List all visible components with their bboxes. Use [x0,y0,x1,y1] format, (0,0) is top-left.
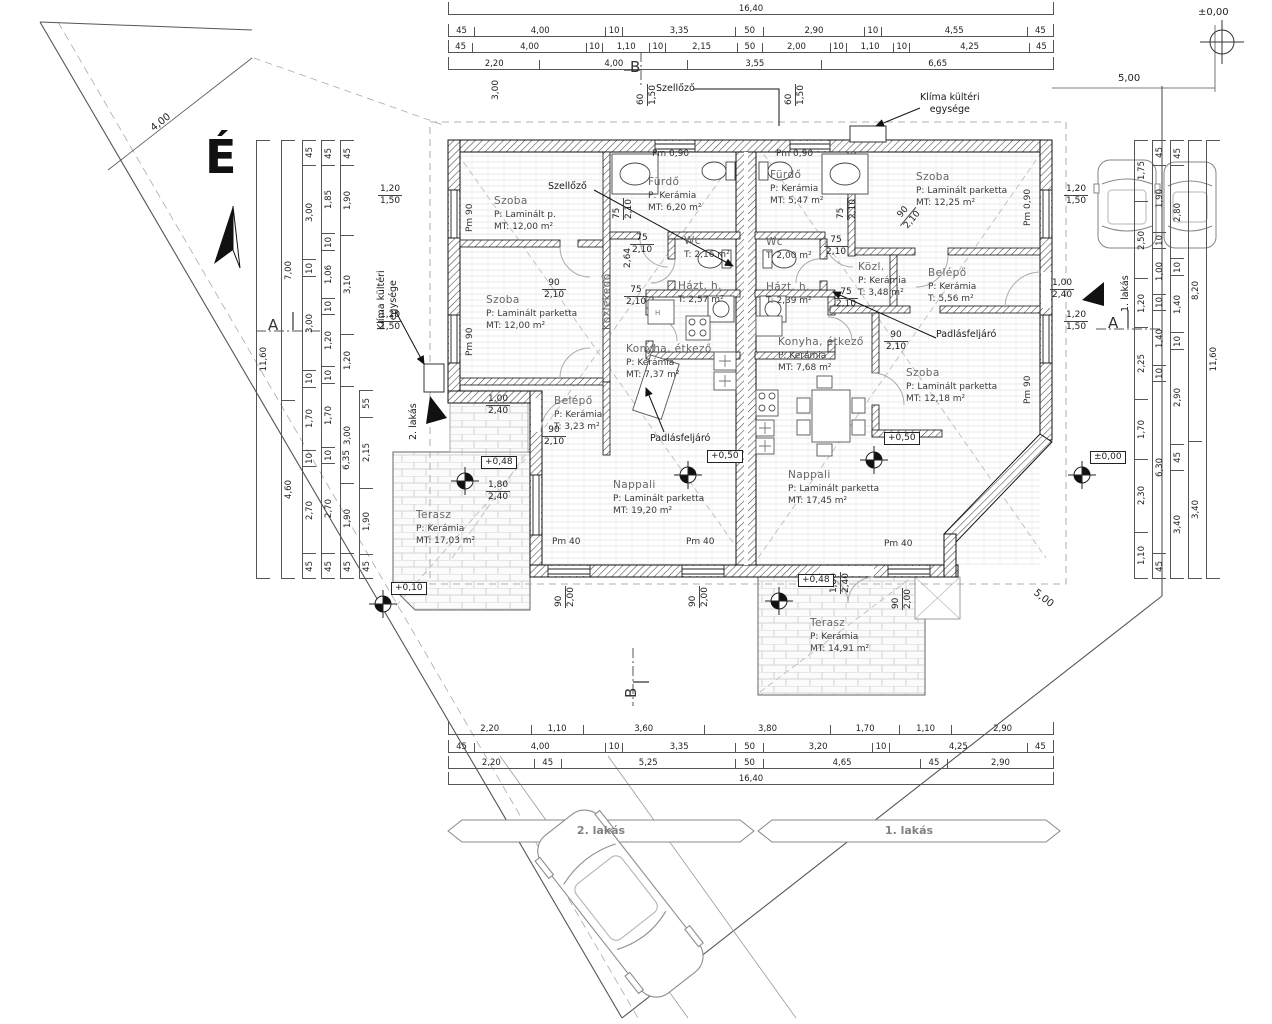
section-a-left: A [268,316,278,334]
room-apt1-hazt: Házt. h. T: 2,39 m² [766,280,812,307]
parapet-label: Pm 90 [466,327,475,356]
room-apt2-furdo: Fürdő P: Kerámia MT: 6,20 m² [648,175,701,215]
room-apt1-wc: Wc T: 2,00 m² [766,235,812,262]
dim-chain-left-6: 552,151,9045 [359,390,373,579]
svg-text:H: H [655,309,660,317]
elevation-ground-right: ±0,00 [1090,451,1126,464]
dim-chain-top-2: 454,00103,35502,90104,5545 [448,24,1054,37]
north-label: É [205,130,236,184]
north-arrow [214,206,240,268]
elevation-terasz-right: +0,48 [798,574,834,587]
parapet-label: Pm 40 [686,538,715,547]
parapet-label: Pm 90 [1024,375,1033,404]
opening-dim: 902,00 [688,586,711,608]
room-apt1-nappali: Nappali P: Laminált parketta MT: 17,45 m… [788,468,879,508]
padlas-label-left: Padlásfeljáró [650,433,710,445]
opening-dim: 601,50 [784,84,807,106]
room-apt2-nappali: Nappali P: Laminált parketta MT: 19,20 m… [613,478,704,518]
dim-chain-right-4: 8,203,40 [1188,140,1202,579]
opening-dim: 752,10 [836,198,859,220]
parapet-label: Pm 40 [884,540,913,549]
ac-unit-right [850,126,886,142]
dim-chain-right-3: 452,80101,40102,90453,40 [1170,140,1184,579]
room-apt1-szoba-top: Szoba P: Laminált parketta MT: 12,25 m² [916,170,1007,210]
elevation-terasz-left: +0,48 [481,456,517,469]
opening-dim: 752,10 [834,287,858,310]
room-apt2-kozlekedo: Közlekedő [600,273,615,330]
dim-chain-left-3: 453,00103,00101,70102,7045 [302,140,316,579]
opening-dim: 902,00 [554,586,577,608]
szellozo-label-top: Szellőző [656,83,695,95]
dim-chain-right-1: 1,752,501,202,251,702,301,10 [1134,140,1148,579]
entrance-label-apt2: 2. lakás [408,403,420,440]
elevation-nappali-right: +0,50 [884,432,920,445]
opening-dim: 752,10 [612,198,635,220]
dim-chain-left-overall: 11,60 [256,140,270,579]
entrance-arrow-left [426,396,447,424]
benchmark-elevation: ±0,00 [1198,8,1229,18]
opening-dim: 1,201,50 [1064,184,1088,207]
section-b-bottom: B [622,688,640,698]
banner-apt1: 1. lakás [772,824,1046,837]
dim-chain-right-2: 451,90101,00101,40106,3045 [1152,140,1166,579]
room-apt1-furdo: Fürdő P: Kerámia MT: 5,47 m² [770,168,823,208]
dim-chain-left-2: 7,004,60 [281,140,295,579]
entrance-label-apt1: 1. lakás [1120,275,1132,312]
car-plan-1 [1094,160,1160,248]
room-apt1-kozl: Közl. P: Kerámia T: 3,48 m² [858,260,906,300]
dim-chain-top-overall: 16,40 [448,2,1054,15]
opening-dim: 752,10 [630,233,654,256]
parapet-label: Pm 90 [466,203,475,232]
opening-dim: 902,10 [542,425,566,448]
padlas-label-right: Padlásfeljáró [936,329,996,341]
dim-corridor-264: 2,64 [624,248,633,268]
parapet-label: Pm 40 [552,538,581,547]
parapet-label: Pm 0,90 [652,150,689,159]
opening-dim: 902,10 [884,330,908,353]
room-apt2-wc: Wc T: 2,16 m² [684,234,730,261]
parapet-label: Pm 0,90 [776,150,813,159]
room-apt2-konyha: Konyha, étkező P: Kerámia MT: 7,37 m² [626,342,712,382]
dim-chain-bottom-overall: 16,40 [448,772,1054,785]
entrance-arrow-right [1082,282,1104,306]
dim-chain-top-4: 2,204,003,556,65 [448,57,1054,70]
dim-chain-bottom-2: 454,00103,35503,20104,2545 [448,740,1054,753]
opening-dim: 902,10 [542,278,566,301]
opening-dim: 752,10 [624,285,648,308]
opening-dim: 1,201,50 [1064,310,1088,333]
szellozo-label-left: Szellőző [548,181,587,193]
room-apt1-szoba-bottom: Szoba P: Laminált parketta MT: 12,18 m² [906,366,997,406]
dim-chain-top-3: 454,00101,10102,15502,00101,10104,2545 [448,40,1054,53]
room-apt2-hazt: Házt. h. T: 2,57 m² [678,279,724,306]
room-apt2-szoba1: Szoba P: Laminált p. MT: 12,00 m² [494,194,556,234]
elevation-ground-left: +0,10 [391,582,427,595]
party-wall-gap [744,152,748,565]
opening-dim: 1,002,40 [1050,278,1074,301]
dim-chain-left-5: 451,903,101,203,001,9045 [340,140,354,579]
opening-dim: 1,002,40 [486,394,510,417]
opening-dim: 1,201,50 [378,184,402,207]
room-apt1-konyha: Konyha, étkező P: Kerámia MT: 7,68 m² [778,335,864,375]
room-apt1-belepo: Belépő P: Kerámia T: 5,56 m² [928,266,976,306]
opening-dim: 752,10 [824,235,848,258]
section-a-right: A [1108,314,1118,332]
dim-top-300: 3,00 [492,80,501,100]
dim-chain-left-4: 451,85101,06101,20101,70102,7045 [321,140,335,579]
floor-plan-page: H [0,0,1272,1024]
section-b-top: B [630,58,640,76]
ac-unit-left [424,364,444,392]
room-apt1-terasz: Terasz P: Kerámia MT: 14,91 m² [810,616,869,656]
parapet-label: Pm 0,90 [1024,189,1033,226]
banner-apt2: 2. lakás [462,824,740,837]
room-apt2-terasz: Terasz P: Kerámia MT: 17,03 m² [416,508,475,548]
klima-label-left: Klíma kültéri egysége [376,270,400,330]
opening-dim: 902,00 [891,588,914,610]
dim-chain-bottom-1: 2,201,103,603,801,701,102,90 [448,722,1054,735]
dim-left-635: 6,35 [343,450,352,470]
dim-chain-bottom-3: 2,20455,25504,65452,90 [448,756,1054,769]
dim-chain-right-overall: 11,60 [1206,140,1220,579]
opening-dim: 1,802,40 [486,480,510,503]
elevation-nappali-left: +0,50 [707,450,743,463]
benchmark-symbol [1200,20,1244,64]
dim-top-right: 5,00 [1118,74,1140,84]
klima-label-top: Klíma kültéri egysége [920,92,980,116]
